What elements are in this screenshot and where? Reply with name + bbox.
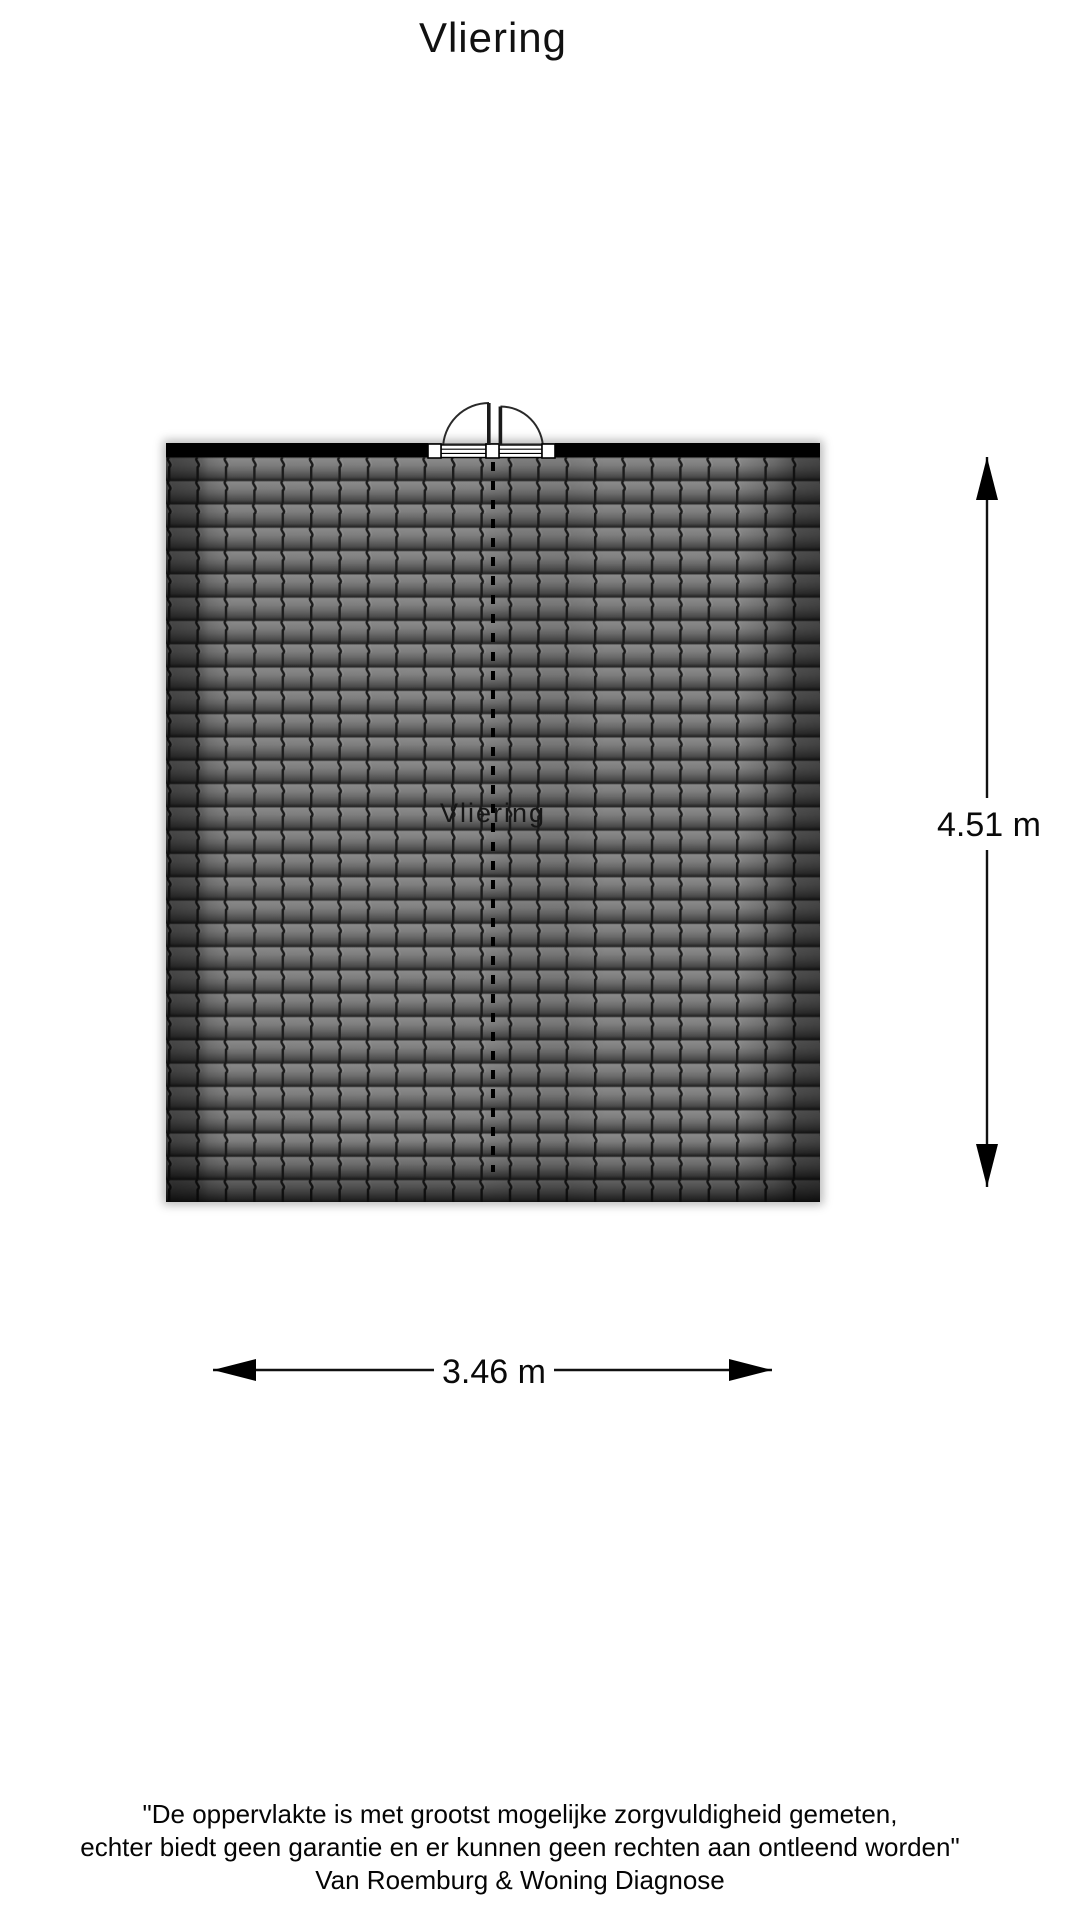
door-post-right — [542, 444, 555, 458]
arrow-down-icon — [976, 1144, 998, 1187]
door-swing-arc-right — [501, 407, 544, 450]
floorplan-page: Vliering — [0, 0, 1080, 1920]
disclaimer-line-3: Van Roemburg & Woning Diagnose — [0, 1864, 1040, 1897]
double-door-symbol — [426, 395, 558, 461]
height-dimension-label: 4.51 m — [927, 806, 1051, 844]
page-title: Vliering — [166, 12, 820, 64]
arrow-right-icon — [729, 1359, 772, 1381]
door-post-left — [428, 444, 441, 458]
top-wall-right-segment — [555, 443, 820, 457]
arrow-up-icon — [976, 457, 998, 500]
door-sill-left — [441, 445, 486, 458]
arrow-left-icon — [213, 1359, 256, 1381]
door-panel-left — [487, 403, 491, 445]
disclaimer-text: "De oppervlakte is met grootst mogelijke… — [0, 1798, 1040, 1897]
door-post-center — [486, 444, 499, 458]
room-label: Vliering — [166, 796, 820, 830]
door-swing-arc-left — [443, 403, 489, 449]
door-sill-right — [499, 445, 542, 458]
top-wall-left-segment — [166, 443, 428, 457]
floor-plan-room: Vliering — [166, 443, 820, 1202]
width-dimension-label: 3.46 m — [434, 1352, 554, 1392]
disclaimer-line-1: "De oppervlakte is met grootst mogelijke… — [0, 1798, 1040, 1831]
door-panel-right — [499, 407, 503, 446]
disclaimer-line-2: echter biedt geen garantie en er kunnen … — [0, 1831, 1040, 1864]
